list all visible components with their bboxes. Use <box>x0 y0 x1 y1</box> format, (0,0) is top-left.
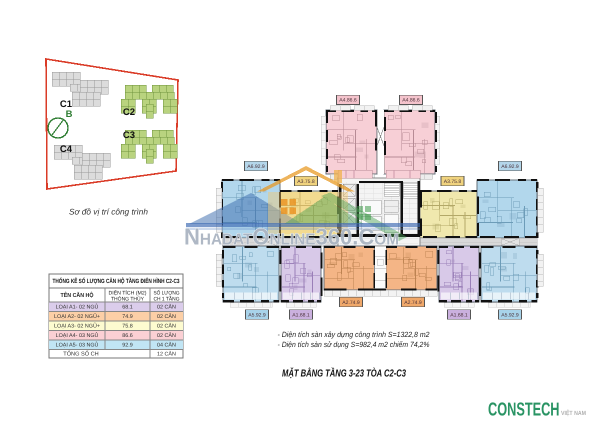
svg-text:LOẠI A4- 03 NGỦ: LOẠI A4- 03 NGỦ <box>56 332 99 339</box>
svg-text:A2.74.9: A2.74.9 <box>342 300 360 306</box>
svg-text:A6.92.9: A6.92.9 <box>247 164 265 170</box>
svg-text:LOẠI A1- 02 NGỦ: LOẠI A1- 02 NGỦ <box>56 304 99 311</box>
svg-text:A4.86.6: A4.86.6 <box>339 98 357 104</box>
svg-text:74.9: 74.9 <box>122 314 133 320</box>
svg-text:NhadatOnline360.Com: NhadatOnline360.Com <box>184 224 399 250</box>
svg-text:02 CĂN: 02 CĂN <box>157 323 176 330</box>
svg-text:VIỆT NAM: VIỆT NAM <box>561 409 586 417</box>
svg-text:- Diện tích sàn sử dụng S=982,: - Diện tích sàn sử dụng S=982,4 m2 chiếm… <box>278 340 430 349</box>
svg-text:C2: C2 <box>123 107 135 118</box>
svg-text:A1.68.1: A1.68.1 <box>450 312 468 318</box>
svg-text:A6.92.9: A6.92.9 <box>501 164 519 170</box>
svg-text:B: B <box>66 109 73 120</box>
svg-text:TÊN CĂN HỘ: TÊN CĂN HỘ <box>61 291 94 299</box>
svg-text:02 CĂN: 02 CĂN <box>157 304 176 311</box>
svg-text:A1.68.1: A1.68.1 <box>292 312 310 318</box>
svg-text:LOẠI A2- 02 NGỦ+: LOẠI A2- 02 NGỦ+ <box>54 313 100 320</box>
svg-text:75.8: 75.8 <box>122 324 133 330</box>
svg-text:02 CĂN: 02 CĂN <box>157 332 176 339</box>
svg-text:Sơ đồ vị trí công trình: Sơ đồ vị trí công trình <box>69 208 148 217</box>
svg-text:TỔNG SỐ CH: TỔNG SỐ CH <box>63 350 98 358</box>
svg-text:04 CĂN: 04 CĂN <box>157 342 176 349</box>
svg-text:A5.92.9: A5.92.9 <box>248 312 266 318</box>
svg-text:- Diện tích sàn xây dựng công: - Diện tích sàn xây dựng công trình S=13… <box>278 330 431 339</box>
svg-text:92.9: 92.9 <box>122 343 133 349</box>
svg-text:SỐ LƯỢNG: SỐ LƯỢNG <box>154 289 180 296</box>
svg-text:68.1: 68.1 <box>122 305 133 311</box>
svg-text:86.6: 86.6 <box>122 333 133 339</box>
svg-text:DIỆN TÍCH (M2): DIỆN TÍCH (M2) <box>109 289 147 296</box>
svg-text:A2.74.9: A2.74.9 <box>404 300 422 306</box>
svg-text:LOẠI A5- 03 NGỦ: LOẠI A5- 03 NGỦ <box>56 342 99 349</box>
svg-text:02 CĂN: 02 CĂN <box>157 313 176 320</box>
svg-text:CONSTECH: CONSTECH <box>488 399 560 420</box>
svg-text:CH 1 TẦNG: CH 1 TẦNG <box>154 295 180 302</box>
svg-text:A5.92.9: A5.92.9 <box>501 312 519 318</box>
svg-text:12 CĂN: 12 CĂN <box>157 351 176 358</box>
svg-text:A4.86.6: A4.86.6 <box>402 98 420 104</box>
svg-text:C4: C4 <box>60 144 73 155</box>
svg-text:A3.75.8: A3.75.8 <box>444 179 462 185</box>
svg-text:THỐNG KÊ SỐ LƯỢNG CĂN HỘ TẦNG: THỐNG KÊ SỐ LƯỢNG CĂN HỘ TẦNG ĐIỂN HÌNH … <box>53 277 180 285</box>
svg-text:C3: C3 <box>123 130 135 141</box>
svg-text:THÔNG THỦY: THÔNG THỦY <box>111 295 145 302</box>
svg-text:LOẠI A3- 02 NGỦ+: LOẠI A3- 02 NGỦ+ <box>54 323 100 330</box>
svg-text:MẶT BẰNG TẦNG 3-23 TÒA C2-C3: MẶT BẰNG TẦNG 3-23 TÒA C2-C3 <box>282 367 406 380</box>
svg-text:A3.75.8: A3.75.8 <box>297 179 315 185</box>
